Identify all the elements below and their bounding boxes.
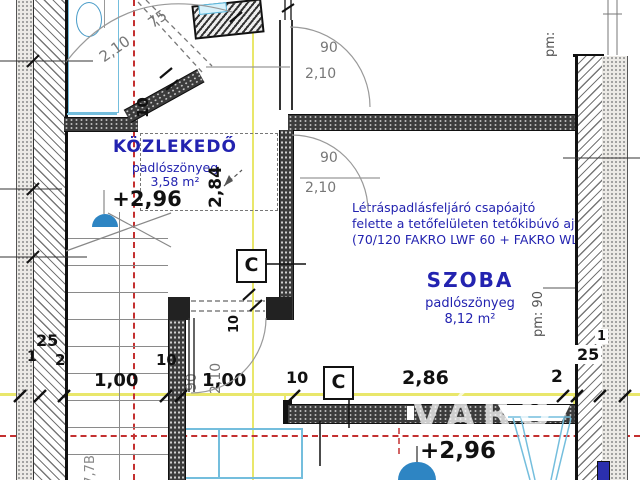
top10-tick-2: [166, 80, 178, 90]
top10-tick-1: [160, 68, 172, 78]
watermark: VÁRO: [412, 392, 558, 436]
top-stub-tick: [282, 4, 294, 12]
dim-right-1: 1: [595, 329, 608, 344]
door1-arc: [290, 27, 370, 107]
top-door-leaf-dashed-1: [138, 2, 202, 72]
dim-right-25: 25: [575, 345, 601, 364]
door3-tick-1: [243, 289, 255, 300]
top-door-arc: [66, 4, 232, 62]
door3-arc: [191, 318, 266, 393]
floor-plan-canvas: VÁRO C C KÖZLEKEDŐ padlószönyeg 3,58 m² …: [0, 0, 640, 480]
door3-tick-2: [250, 300, 262, 311]
top-block-tick: [230, 12, 242, 22]
stair-break-line-2: [108, 213, 171, 247]
top-door-leaf-dashed-2: [146, 0, 212, 66]
door2-arc: [292, 135, 368, 211]
section-marker-c1-label: C: [245, 254, 259, 276]
hatch-arrow-head: [224, 175, 233, 186]
section-marker-c2-label: C: [332, 371, 346, 393]
section-marker-c1: C: [236, 249, 267, 283]
leader-ticks: [27, 55, 39, 263]
section-marker-c2: C: [323, 366, 354, 400]
